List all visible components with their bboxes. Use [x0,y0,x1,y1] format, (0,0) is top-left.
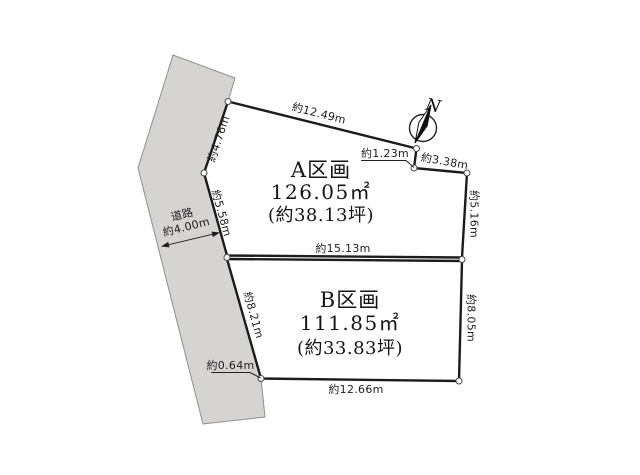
vertex-dot [459,257,465,263]
measurement-a-right: 約5.16m [468,190,482,238]
north-label: N [423,95,444,118]
plot-b-tsubo: (約33.83坪) [297,338,403,359]
plot-b-area: 111.85㎡ [300,311,400,335]
vertex-dot [414,146,420,152]
plot-a-area: 126.05㎡ [271,180,371,204]
plot-a-name: A区画 [290,158,351,182]
measurement-a-top: 約12.49m [290,100,347,127]
measurement-b-right: 約8.05m [465,294,479,342]
measurement-notch-step: 約1.23m [361,146,409,160]
leader-line-notch-step [361,161,414,168]
plot-a-tsubo: (約38.13坪) [268,205,374,226]
measurement-divider: 約15.13m [315,241,370,255]
vertex-dot [456,378,462,384]
measurement-b-bottom: 約12.66m [328,382,383,396]
north-compass: N [410,95,444,143]
vertex-dot [258,376,264,382]
vertex-dot [201,170,207,176]
plot-b-name: B区画 [320,288,380,312]
measurement-b-corner: 約0.64m [206,358,254,372]
land-plot-diagram: A区画 126.05㎡ (約38.13坪) B区画 111.85㎡ (約33.8… [0,0,640,475]
vertex-dot [224,255,230,261]
vertex-dot [225,99,231,105]
